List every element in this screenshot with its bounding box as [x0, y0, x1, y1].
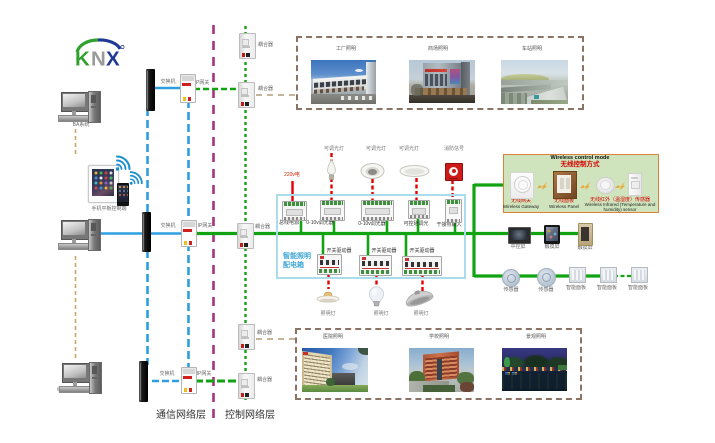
svg-text:K: K	[75, 48, 90, 69]
svg-text:N: N	[91, 48, 106, 69]
svg-text:X: X	[106, 48, 120, 69]
